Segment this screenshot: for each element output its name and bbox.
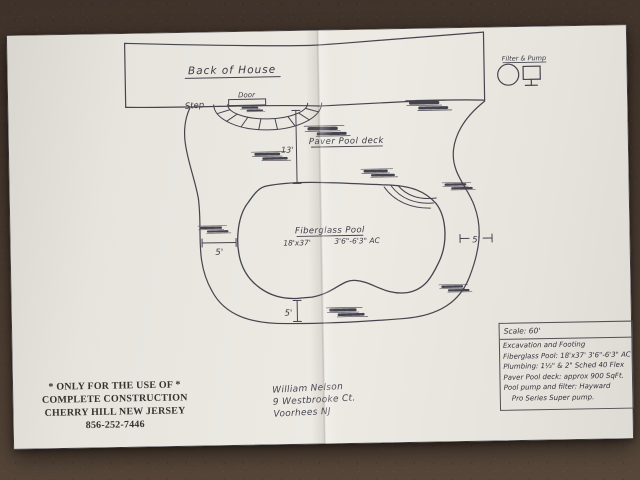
hatch-mark	[304, 125, 350, 136]
house-outline	[125, 32, 485, 109]
door-label: Door	[238, 91, 256, 99]
house-label: Back of House	[188, 64, 276, 78]
hatch-mark	[361, 169, 398, 178]
deck-label: Paver Pool deck	[309, 136, 385, 147]
pool-label: Fiberglass Pool	[295, 225, 365, 236]
spec-line-pump2: Pro Series Super pump.	[504, 392, 633, 405]
step-label: Step	[184, 100, 204, 112]
equipment-label: Filter & Pump	[502, 54, 546, 63]
hatch-mark	[439, 284, 472, 292]
filter-circle	[498, 64, 519, 85]
pool-dims-label: 18'x37'	[283, 238, 311, 247]
hatch-mark	[326, 307, 368, 317]
graph-paper-sheet: Back of House Door Step Paver Pool deck …	[6, 25, 633, 450]
deck-width-dim-label: 13'	[281, 145, 294, 154]
door-rect	[229, 99, 266, 106]
hatch-mark	[442, 182, 475, 190]
client-note: William Nelson 9 Westbrooke Ct. Voorhees…	[272, 379, 384, 421]
hatch-mark	[198, 226, 231, 234]
dim-left-label: 5'	[215, 248, 223, 258]
dim-right-label: 5'	[472, 235, 480, 245]
dim-bottom-label: 5'	[284, 308, 292, 318]
pool-depth-label: 3'6"-6'3" AC	[334, 236, 380, 246]
hatch-mark	[406, 100, 452, 111]
dimension-left	[202, 238, 236, 247]
hatch-mark-door	[240, 106, 265, 112]
dimension-bottom	[293, 300, 301, 321]
pump-square	[523, 66, 540, 79]
contractor-stamp: * ONLY FOR THE USE OF * COMPLETE CONSTRU…	[26, 378, 203, 433]
spec-box: Scale: 60' Excavation and Footing Fiberg…	[499, 321, 635, 411]
step-arc	[214, 103, 322, 131]
filter-pump-equipment	[497, 62, 546, 86]
